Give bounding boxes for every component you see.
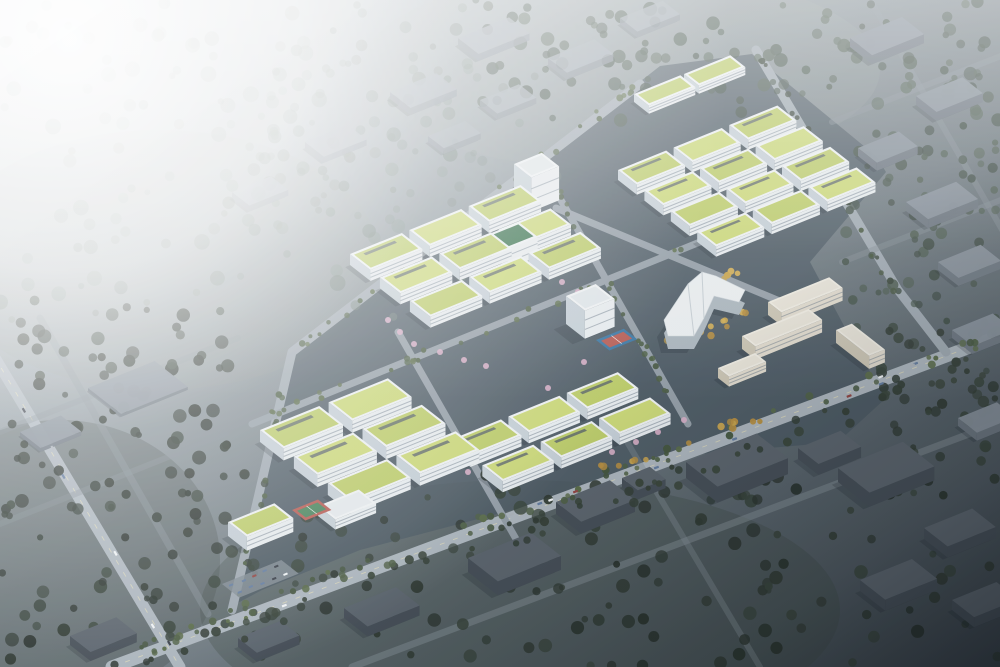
vignette — [0, 0, 1000, 667]
rendering-canvas — [0, 0, 1000, 667]
fog-overlay — [0, 0, 1000, 667]
aerial-masterplan-rendering — [0, 0, 1000, 667]
